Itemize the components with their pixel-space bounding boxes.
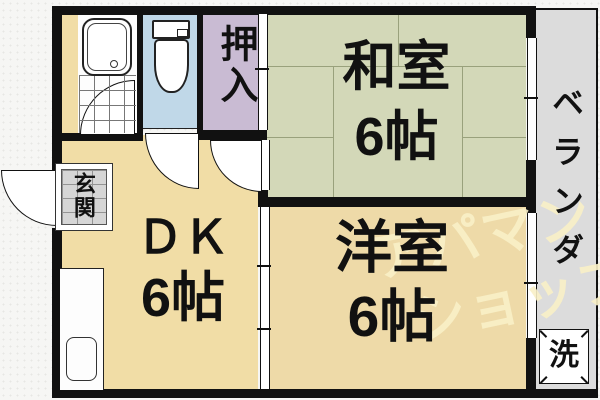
washitsu-label: 和室 6帖 — [267, 39, 526, 165]
washitsu-name: 和室 — [267, 39, 526, 95]
corner-tick — [581, 330, 588, 337]
wall-top — [52, 6, 536, 15]
window-washitsu — [527, 38, 537, 160]
dk-label: ＤＫ 6帖 — [103, 214, 263, 326]
washitsu-size: 6帖 — [267, 109, 526, 165]
laundry-label: 洗 — [540, 340, 588, 371]
wall-bottom — [52, 389, 598, 398]
kitchen-counter — [60, 268, 104, 390]
youshitsu-name: 洋室 — [267, 219, 517, 278]
dk-name: ＤＫ — [103, 214, 263, 262]
veranda-label: ベランダ — [548, 86, 582, 282]
wall-left-upper — [52, 6, 62, 170]
window-tick — [524, 97, 538, 99]
floorplan: 玄関 和室 6帖 洋室 6帖 ＤＫ 6帖 押入 ベランダ 洗 アパマン ショップ — [0, 0, 600, 400]
toilet-handle — [177, 29, 188, 37]
corner-tick — [540, 330, 547, 337]
wall-toilet-oshiire — [197, 6, 203, 136]
bathtub-inner — [87, 23, 127, 71]
genkan-label: 玄関 — [71, 172, 94, 220]
bathroom-tile-floor — [79, 75, 136, 133]
wall-veranda-seg1 — [526, 6, 536, 38]
bathtub-drain — [110, 60, 118, 68]
wall-bath-toilet — [137, 6, 143, 141]
dk-size: 6帖 — [103, 270, 263, 326]
bathtub-icon — [82, 18, 132, 76]
wall-under-oshiire — [197, 130, 267, 140]
wall-washitsu-youshitsu — [258, 197, 536, 207]
corner-tick — [540, 376, 547, 383]
toilet-tank-icon — [152, 20, 190, 39]
youshitsu-size: 6帖 — [267, 288, 517, 347]
laundry-box: 洗 — [539, 329, 589, 384]
corner-tick — [581, 376, 588, 383]
kitchen-sink-icon — [66, 337, 97, 381]
oshiire-label: 押入 — [210, 24, 254, 106]
youshitsu-label: 洋室 6帖 — [267, 219, 517, 348]
door-swing-entrance — [1, 170, 57, 226]
window-tick — [524, 282, 538, 284]
hallway-strip-floor — [62, 14, 78, 135]
wall-veranda-seg3 — [526, 338, 536, 397]
window-youshitsu — [527, 213, 537, 338]
toilet-bowl-icon — [154, 39, 189, 93]
